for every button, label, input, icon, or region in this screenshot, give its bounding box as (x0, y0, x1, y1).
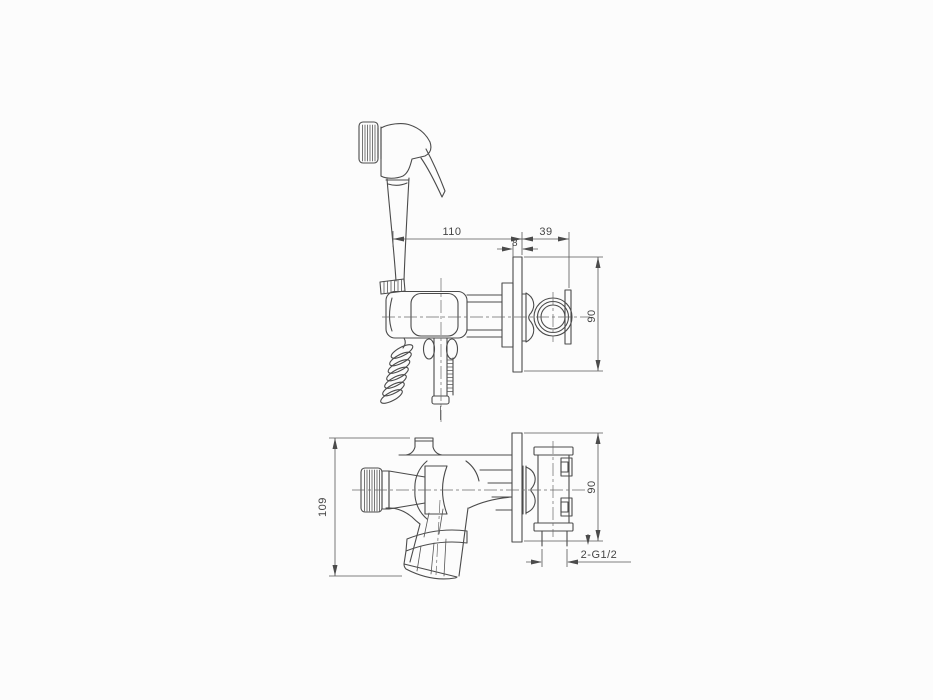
centerlines-side (382, 278, 590, 422)
dimension-label-8: 8 (512, 238, 518, 249)
wall-plate-front (512, 433, 573, 546)
technical-drawing: 110 39 8 90 (0, 0, 933, 700)
spiral-hose (379, 338, 415, 406)
dimension-label-thread: 2-G1/2 (581, 549, 618, 561)
centerlines-front (352, 406, 586, 575)
arm-flange (502, 283, 513, 347)
nozzle-cap-ribs (363, 125, 376, 161)
holder-stub-side (424, 338, 458, 404)
cylinder-bottom-flange (534, 523, 573, 531)
front-view: 109 90 2-G1/2 (317, 406, 631, 579)
wall-arm-side (467, 295, 502, 337)
dimension-label-110: 110 (442, 226, 461, 238)
pipe-stub-bottom (542, 531, 567, 546)
escutcheon-side (513, 257, 522, 372)
dimension-label-90-side: 90 (586, 309, 598, 322)
spout-front (386, 497, 512, 579)
handle-side (386, 178, 409, 281)
concealed-cylinder (538, 455, 569, 523)
nozzle-cap-ribs-front (365, 470, 380, 511)
connection-port-top (561, 458, 572, 476)
mount-bracket-side (522, 293, 534, 342)
dimension-label-109: 109 (317, 497, 329, 517)
dimension-label-39: 39 (539, 226, 552, 238)
spray-head-side (359, 122, 445, 294)
wall-plate-side (513, 257, 572, 372)
dim-90-front: 90 (524, 433, 603, 541)
drawing-sheet: 110 39 8 90 (0, 0, 933, 700)
dim-109: 109 (317, 438, 410, 576)
side-view: 110 39 8 90 (359, 122, 603, 422)
dim-90-side: 90 (524, 257, 603, 371)
holder-block-side (386, 283, 513, 347)
dimension-label-90-front: 90 (586, 480, 598, 493)
escutcheon-front (512, 433, 522, 542)
cylinder-top-flange (534, 447, 573, 455)
top-stub-front (406, 438, 442, 455)
connection-port-bottom (561, 498, 572, 516)
body-front (399, 455, 512, 519)
